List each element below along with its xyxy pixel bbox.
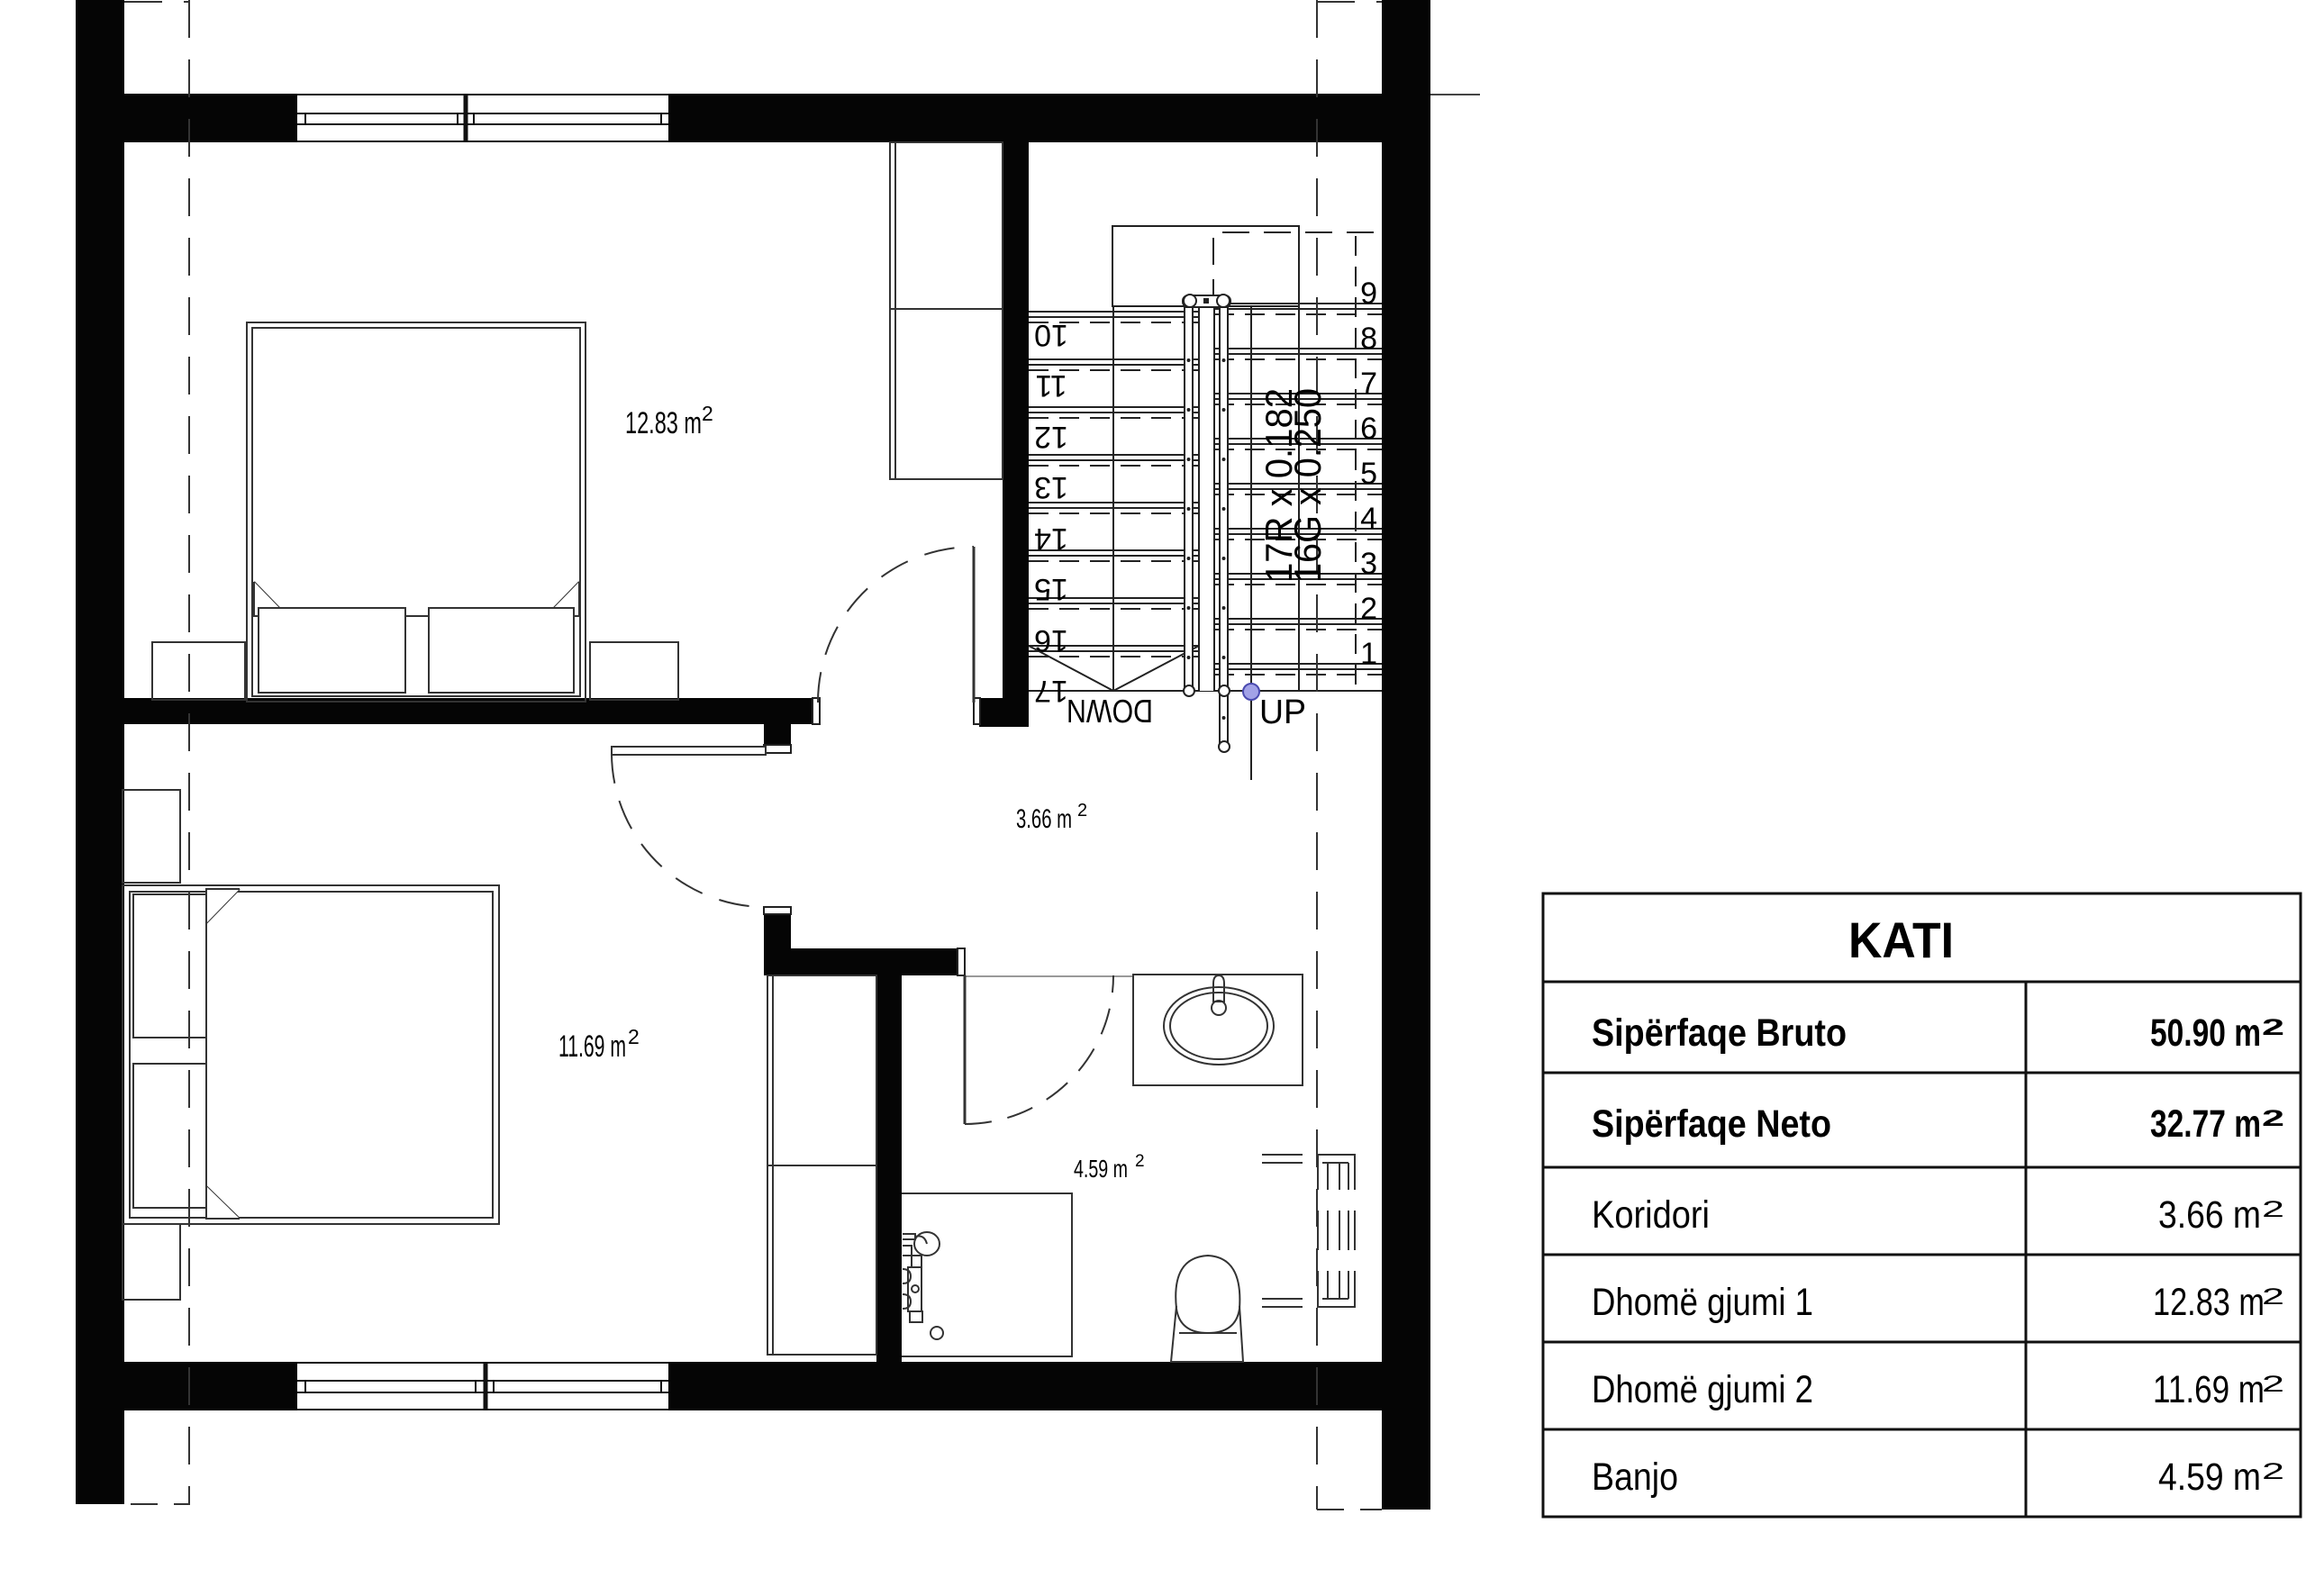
svg-text:3: 3 (1360, 547, 1377, 581)
svg-text:10: 10 (1034, 318, 1068, 352)
svg-text:6: 6 (1360, 412, 1377, 446)
svg-text:DOWN: DOWN (1067, 693, 1153, 730)
svg-text:2: 2 (1135, 1152, 1145, 1171)
svg-text:11.69 m: 11.69 m (2153, 1368, 2265, 1411)
svg-text:17: 17 (1034, 674, 1068, 708)
svg-text:2: 2 (2262, 1015, 2284, 1040)
svg-text:Sipërfaqe Bruto: Sipërfaqe Bruto (1592, 1011, 1847, 1055)
svg-text:50.90 m: 50.90 m (2150, 1011, 2261, 1055)
svg-text:4.59 m: 4.59 m (1074, 1155, 1128, 1183)
svg-text:15: 15 (1034, 572, 1068, 606)
svg-text:KATI: KATI (1848, 911, 1954, 968)
svg-text:1: 1 (1360, 637, 1377, 671)
svg-text:16G x 0.250: 16G x 0.250 (1286, 388, 1329, 583)
svg-text:2: 2 (1077, 801, 1087, 821)
svg-text:2: 2 (628, 1025, 640, 1048)
svg-text:5: 5 (1360, 457, 1377, 491)
svg-text:2: 2 (2262, 1284, 2284, 1310)
svg-text:11: 11 (1035, 368, 1067, 403)
svg-text:2: 2 (2262, 1459, 2284, 1484)
svg-text:7: 7 (1360, 367, 1377, 401)
svg-text:Dhomë gjumi 1: Dhomë gjumi 1 (1592, 1281, 1813, 1324)
svg-text:4: 4 (1360, 502, 1377, 536)
svg-text:Koridori: Koridori (1592, 1193, 1710, 1237)
svg-text:UP: UP (1259, 694, 1306, 731)
svg-text:2: 2 (702, 402, 713, 425)
svg-text:4.59 m: 4.59 m (2158, 1455, 2261, 1499)
svg-text:12.83 m: 12.83 m (625, 406, 702, 440)
svg-text:9: 9 (1360, 277, 1377, 311)
svg-text:Sipërfaqe Neto: Sipërfaqe Neto (1592, 1102, 1831, 1146)
svg-text:12: 12 (1034, 420, 1068, 454)
svg-text:12.83 m: 12.83 m (2153, 1281, 2265, 1324)
svg-text:3.66 m: 3.66 m (1016, 804, 1072, 834)
svg-text:11.69 m: 11.69 m (558, 1029, 626, 1064)
svg-text:32.77 m: 32.77 m (2150, 1102, 2261, 1146)
svg-text:14: 14 (1034, 521, 1068, 556)
svg-text:Dhomë gjumi 2: Dhomë gjumi 2 (1592, 1368, 1813, 1411)
svg-text:3.66 m: 3.66 m (2158, 1193, 2261, 1237)
svg-text:8: 8 (1360, 322, 1377, 356)
svg-text:Banjo: Banjo (1592, 1455, 1678, 1499)
svg-text:2: 2 (2262, 1197, 2284, 1222)
svg-text:2: 2 (2262, 1106, 2284, 1131)
svg-text:16: 16 (1034, 623, 1068, 657)
svg-text:2: 2 (2262, 1372, 2284, 1397)
svg-text:2: 2 (1360, 592, 1377, 626)
svg-text:13: 13 (1034, 470, 1068, 504)
